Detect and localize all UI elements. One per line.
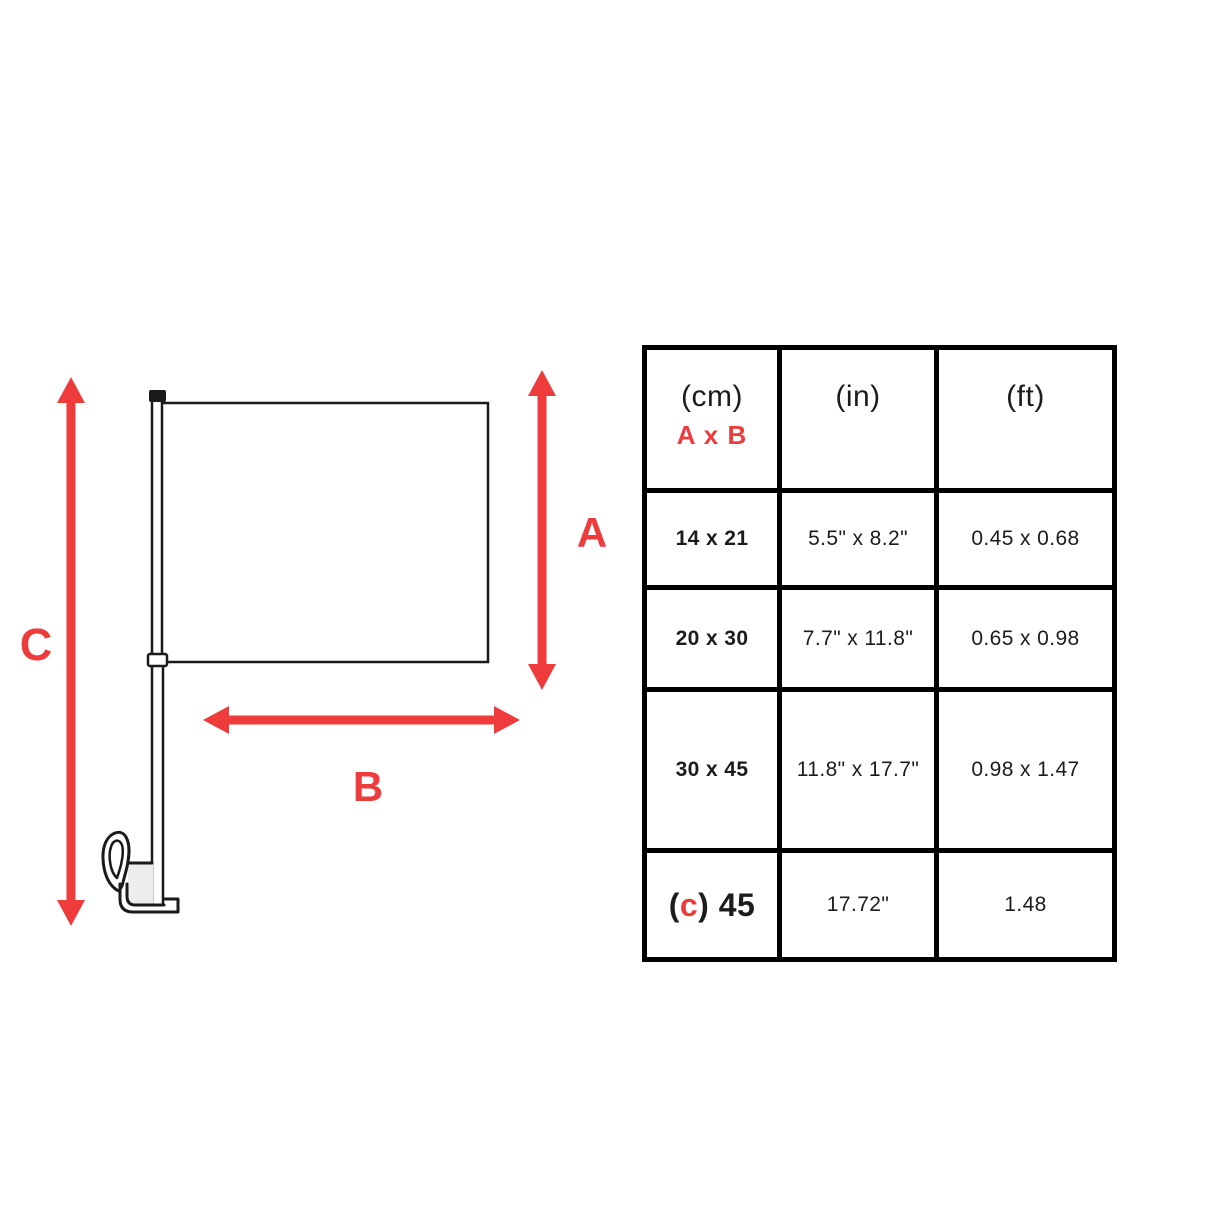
table-cell-cm-2: 20 x 30: [647, 590, 777, 687]
table-cell-in-1: 5.5" x 8.2": [782, 493, 934, 585]
table-cell-in-3: 11.8" x 17.7": [782, 692, 934, 848]
c45-close-45: ) 45: [698, 887, 755, 923]
clip-panel: [128, 864, 153, 904]
table-cell-cm-3: 30 x 45: [647, 692, 777, 848]
dimension-label-c: C: [8, 622, 64, 667]
header-ft-label: (ft): [1006, 380, 1045, 414]
c45-label: (c) 45: [669, 887, 756, 924]
pole-cap: [149, 390, 166, 402]
header-axb-label: A x B: [677, 420, 748, 451]
dimension-label-a: A: [564, 512, 620, 554]
header-cell-in: (in): [782, 350, 934, 488]
window-clip: [103, 832, 178, 912]
car-flag-diagram: [0, 340, 640, 965]
table-cell-in-4: 17.72": [782, 853, 934, 957]
dimension-arrow-b-icon: [203, 706, 520, 734]
table-cell-ft-2: 0.65 x 0.98: [939, 590, 1112, 687]
flag-rectangle: [162, 403, 488, 662]
table-cell-in-2: 7.7" x 11.8": [782, 590, 934, 687]
table-cell-cm-1: 14 x 21: [647, 493, 777, 585]
pole-ring-connector: [148, 654, 167, 666]
dimension-arrow-a-icon: [528, 370, 556, 690]
size-table: (cm) A x B (in) (ft) 14 x 21 5.5" x 8.2"…: [642, 345, 1117, 962]
table-cell-cm-4: (c) 45: [647, 853, 777, 957]
dimension-label-b: B: [340, 766, 396, 808]
table-cell-ft-1: 0.45 x 0.68: [939, 493, 1112, 585]
c45-red-c: c: [680, 887, 698, 923]
header-cell-cm: (cm) A x B: [647, 350, 777, 488]
header-in-label: (in): [835, 380, 880, 414]
table-cell-ft-3: 0.98 x 1.47: [939, 692, 1112, 848]
header-cm-label: (cm): [681, 380, 743, 414]
page-canvas: A B C (cm) A x B (in) (ft) 14 x 21 5.5" …: [0, 0, 1214, 1214]
c45-open-paren: (: [669, 887, 680, 923]
header-cell-ft: (ft): [939, 350, 1112, 488]
table-cell-ft-4: 1.48: [939, 853, 1112, 957]
